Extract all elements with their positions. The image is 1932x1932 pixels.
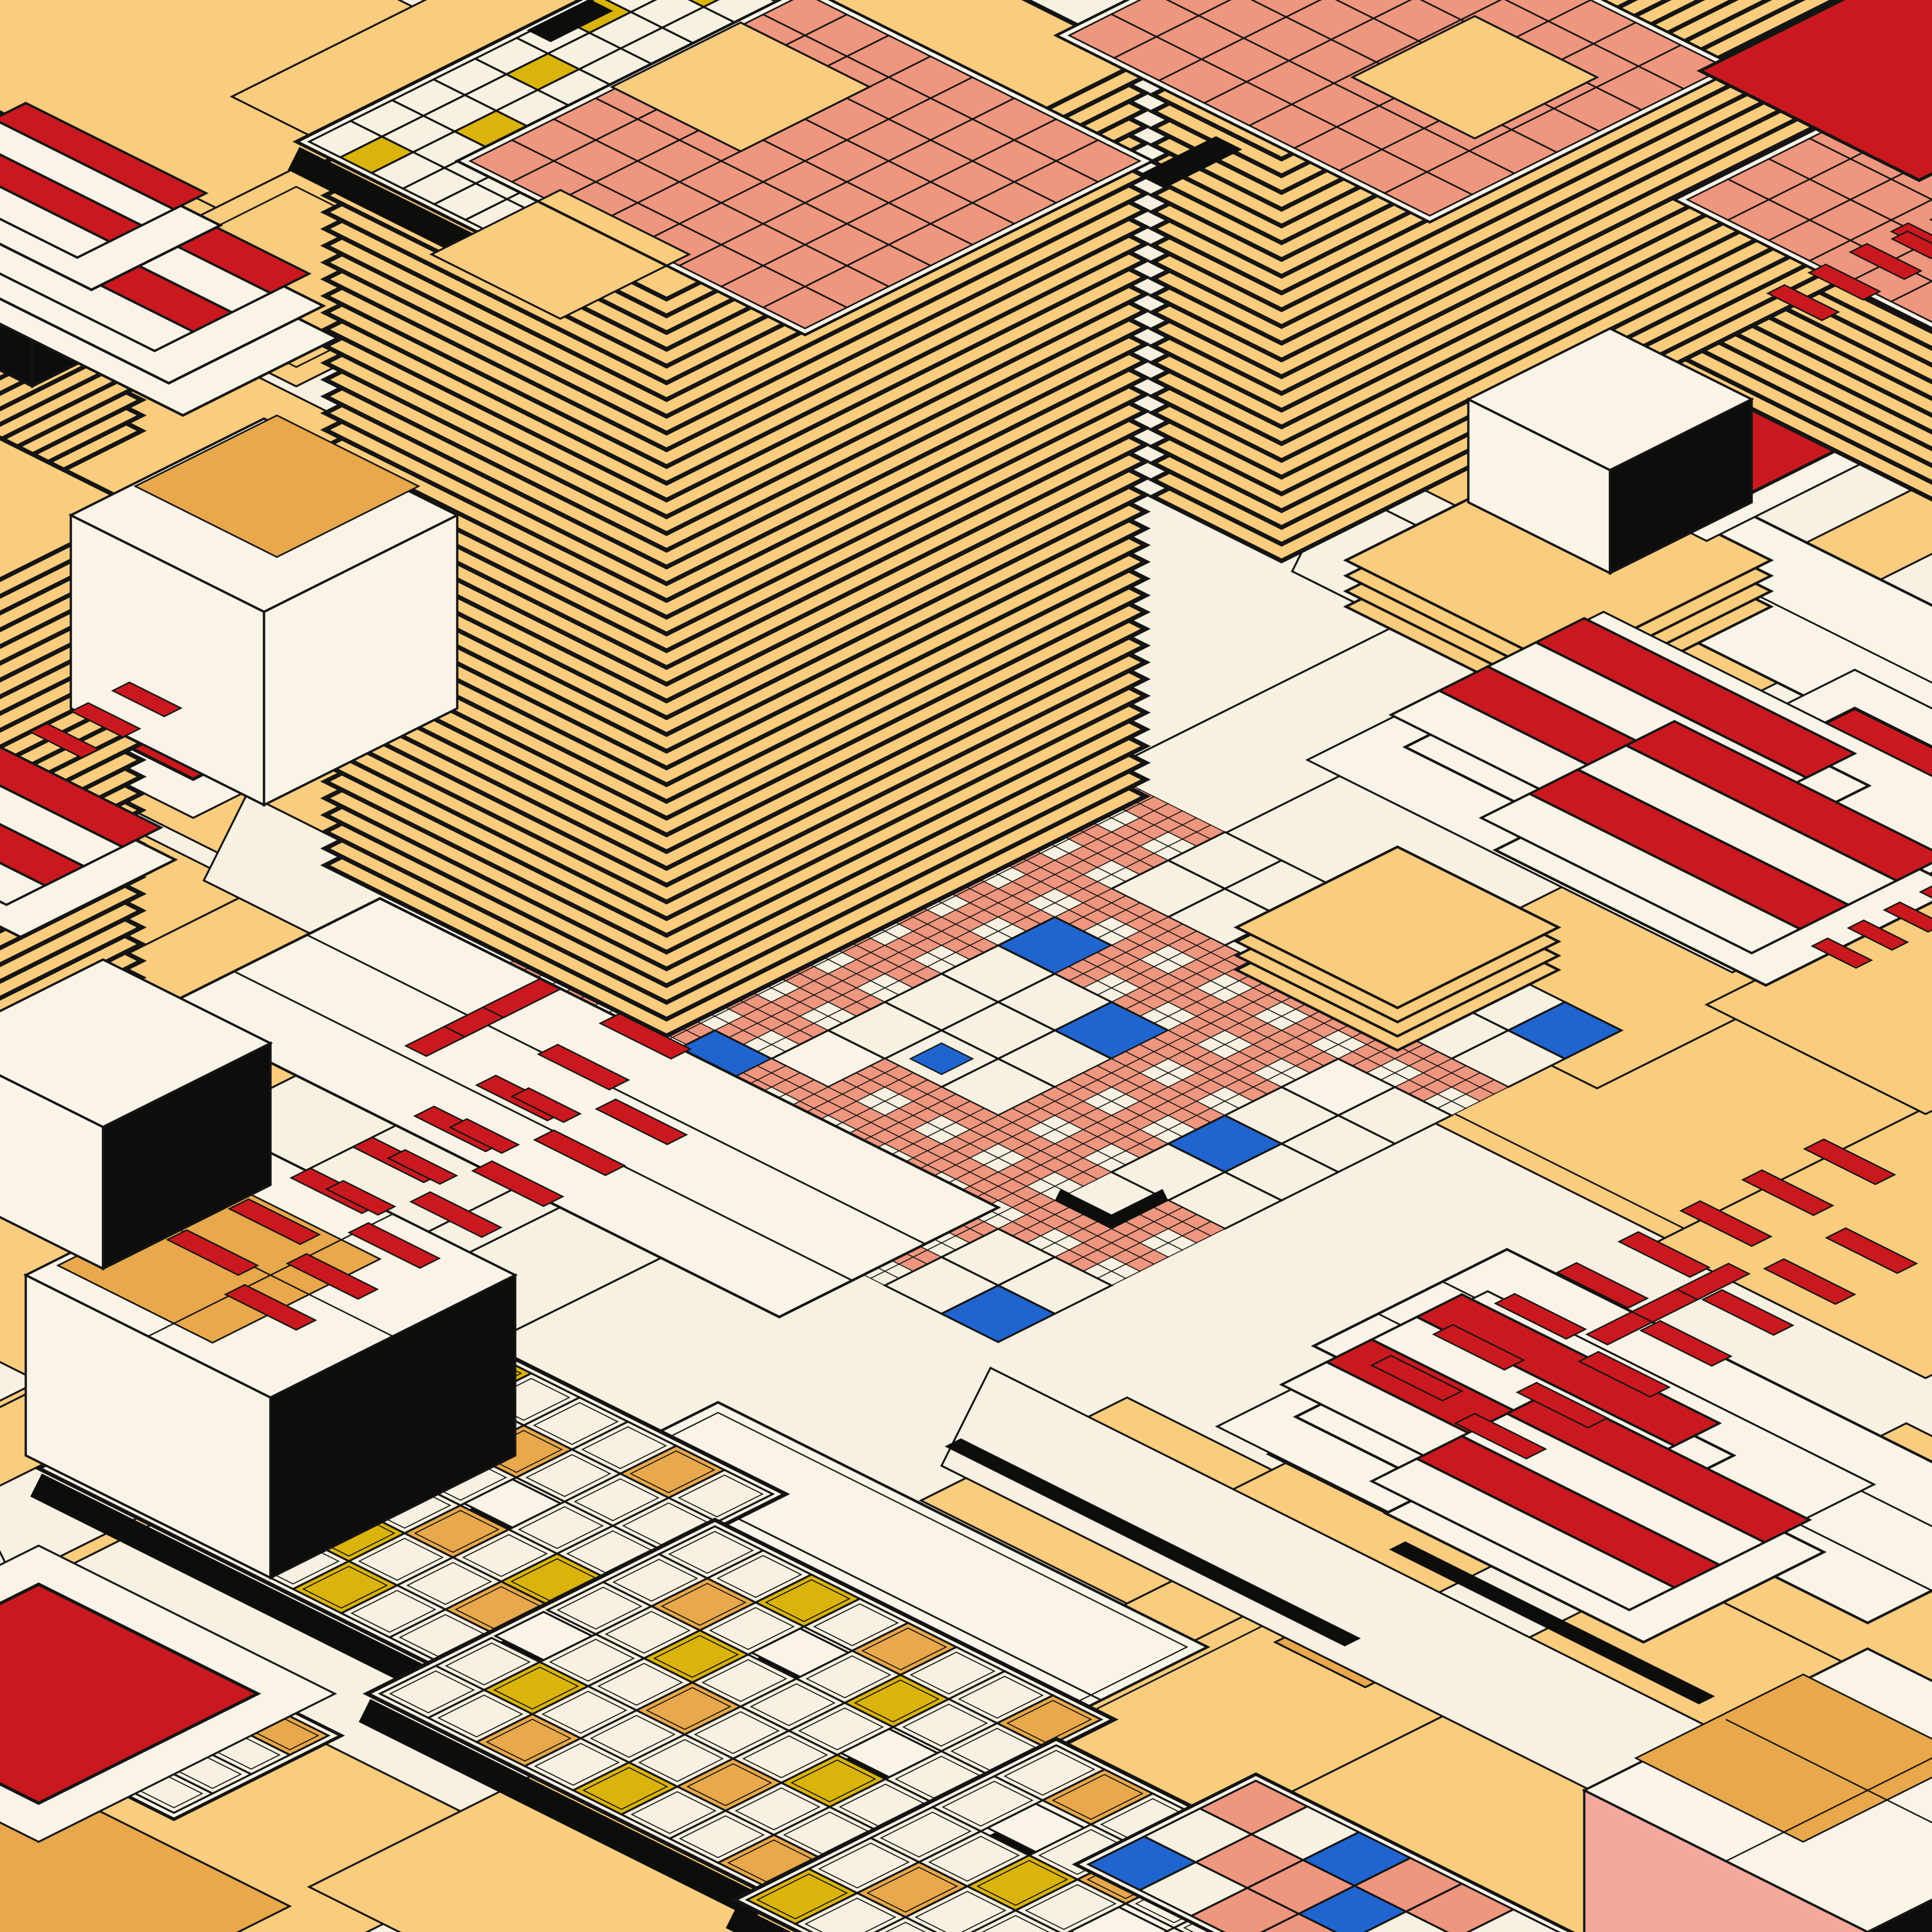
artwork-canvas — [0, 0, 1932, 1932]
generative-artwork — [0, 0, 1932, 1932]
